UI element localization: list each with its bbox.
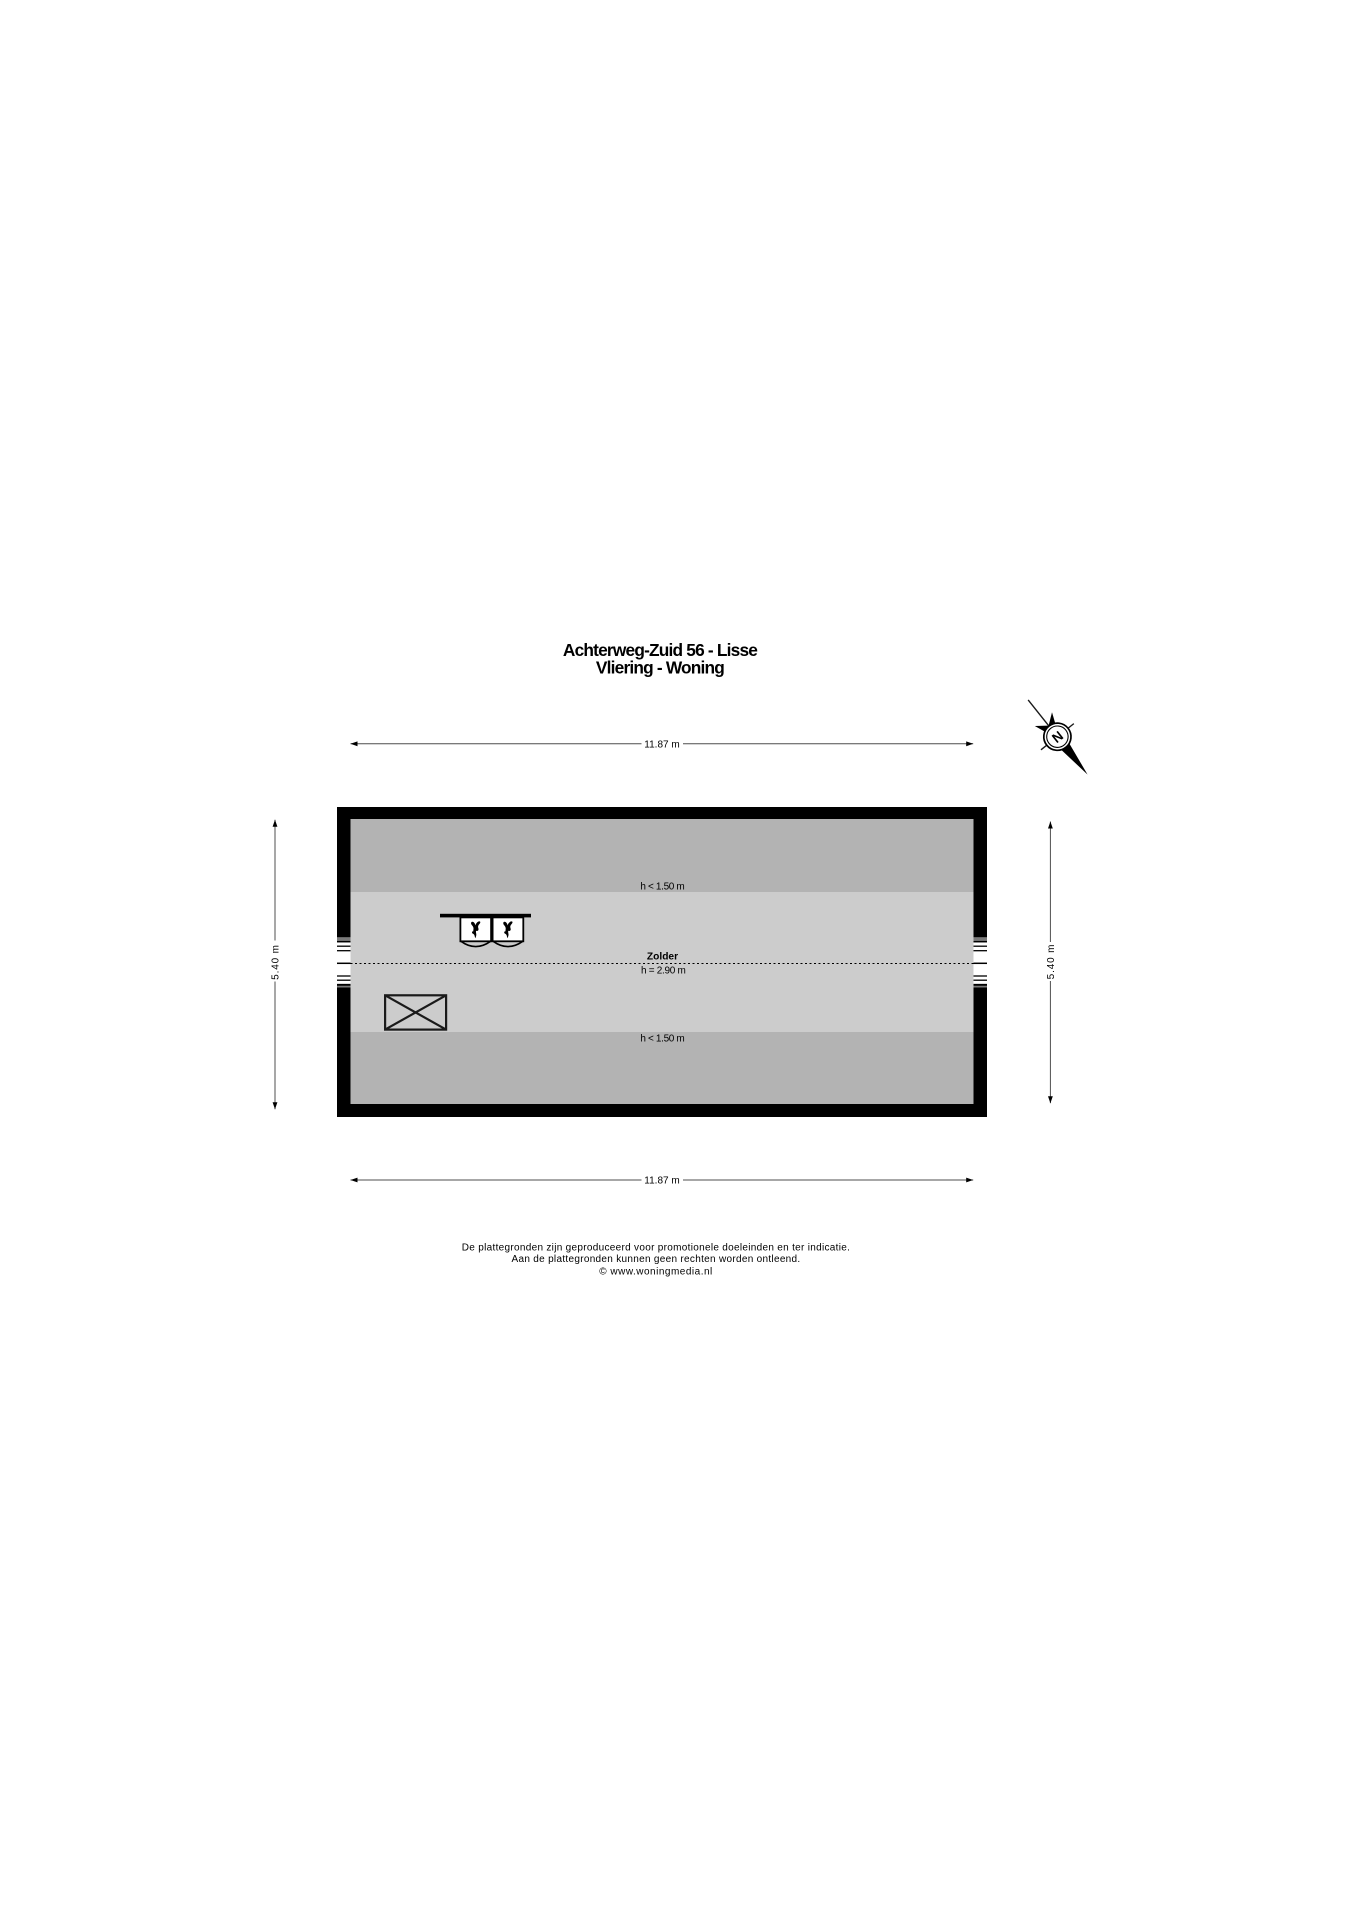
svg-text:5.40 m: 5.40 m <box>1046 944 1057 980</box>
svg-text:11.87 m: 11.87 m <box>644 1176 679 1187</box>
svg-text:De plattegronden zijn geproduc: De plattegronden zijn geproduceerd voor … <box>462 1242 850 1253</box>
svg-text:© www.woningmedia.nl: © www.woningmedia.nl <box>599 1266 713 1277</box>
svg-text:11.87 m: 11.87 m <box>644 739 679 750</box>
svg-text:Zolder: Zolder <box>647 952 678 963</box>
svg-text:h < 1.50 m: h < 1.50 m <box>640 881 684 892</box>
svg-text:h = 2.90 m: h = 2.90 m <box>641 966 686 977</box>
svg-text:h < 1.50 m: h < 1.50 m <box>640 1034 684 1045</box>
svg-text:5.40 m: 5.40 m <box>271 944 282 980</box>
svg-text:Aan de plattegronden kunnen ge: Aan de plattegronden kunnen geen rechten… <box>512 1254 801 1265</box>
svg-text:Vliering - Woning: Vliering - Woning <box>596 657 724 677</box>
